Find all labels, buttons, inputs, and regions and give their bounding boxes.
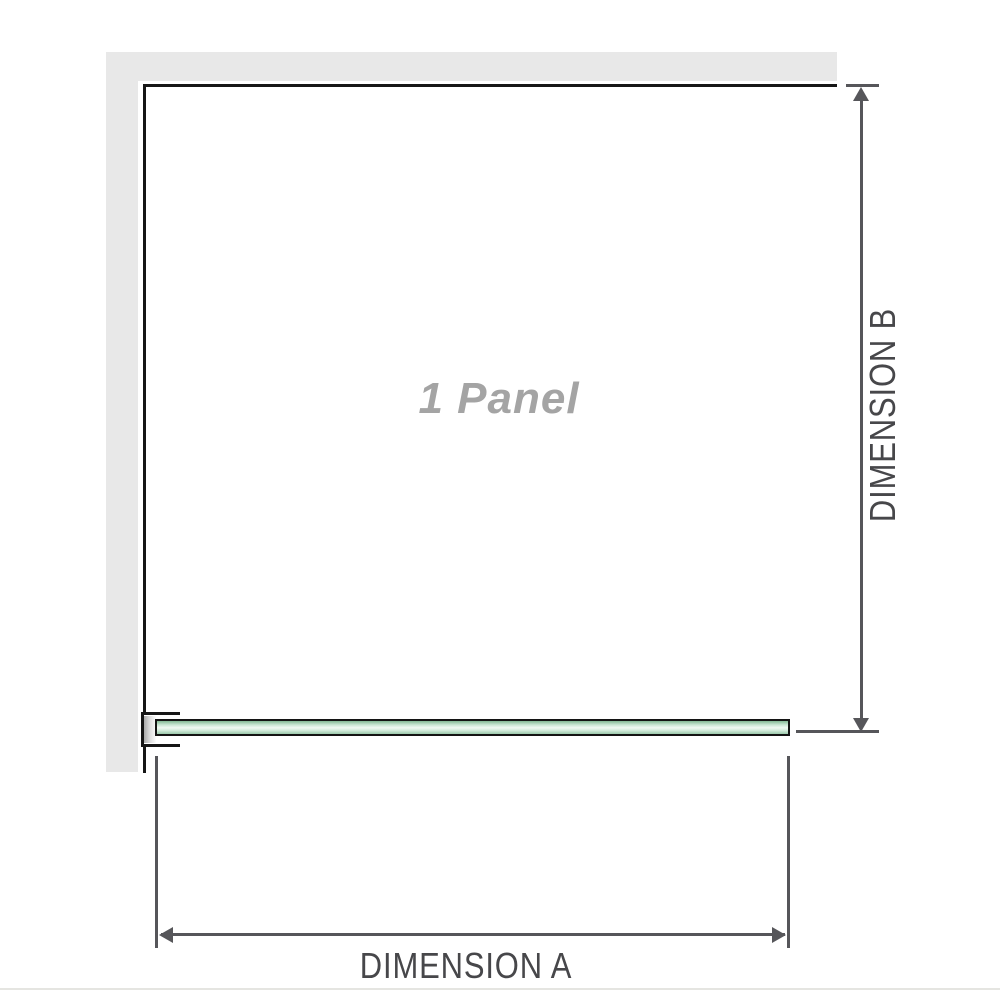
dimension-b-arrow-up-icon (853, 87, 869, 101)
wall-vertical (106, 52, 138, 772)
dimension-a-arrow-right-icon (772, 927, 786, 943)
dimension-a-extension-right (787, 756, 790, 948)
panel-outline-top (143, 84, 837, 87)
shower-panel-diagram: 1 Panel DIMENSION B DIMENSION A (0, 0, 1000, 1000)
dimension-b-arrow-down-icon (853, 718, 869, 732)
glass-panel (155, 719, 790, 736)
panel-outline-left (143, 84, 146, 773)
dimension-a-line (161, 933, 785, 936)
bottom-divider (0, 988, 1000, 990)
panel-count-label: 1 Panel (299, 374, 699, 424)
dimension-a-extension-left (155, 756, 158, 948)
dimension-b-label: DIMENSION B (861, 243, 905, 587)
dimension-a-label: DIMENSION A (208, 946, 724, 986)
wall-horizontal (106, 52, 837, 81)
dimension-a-arrow-left-icon (159, 927, 173, 943)
